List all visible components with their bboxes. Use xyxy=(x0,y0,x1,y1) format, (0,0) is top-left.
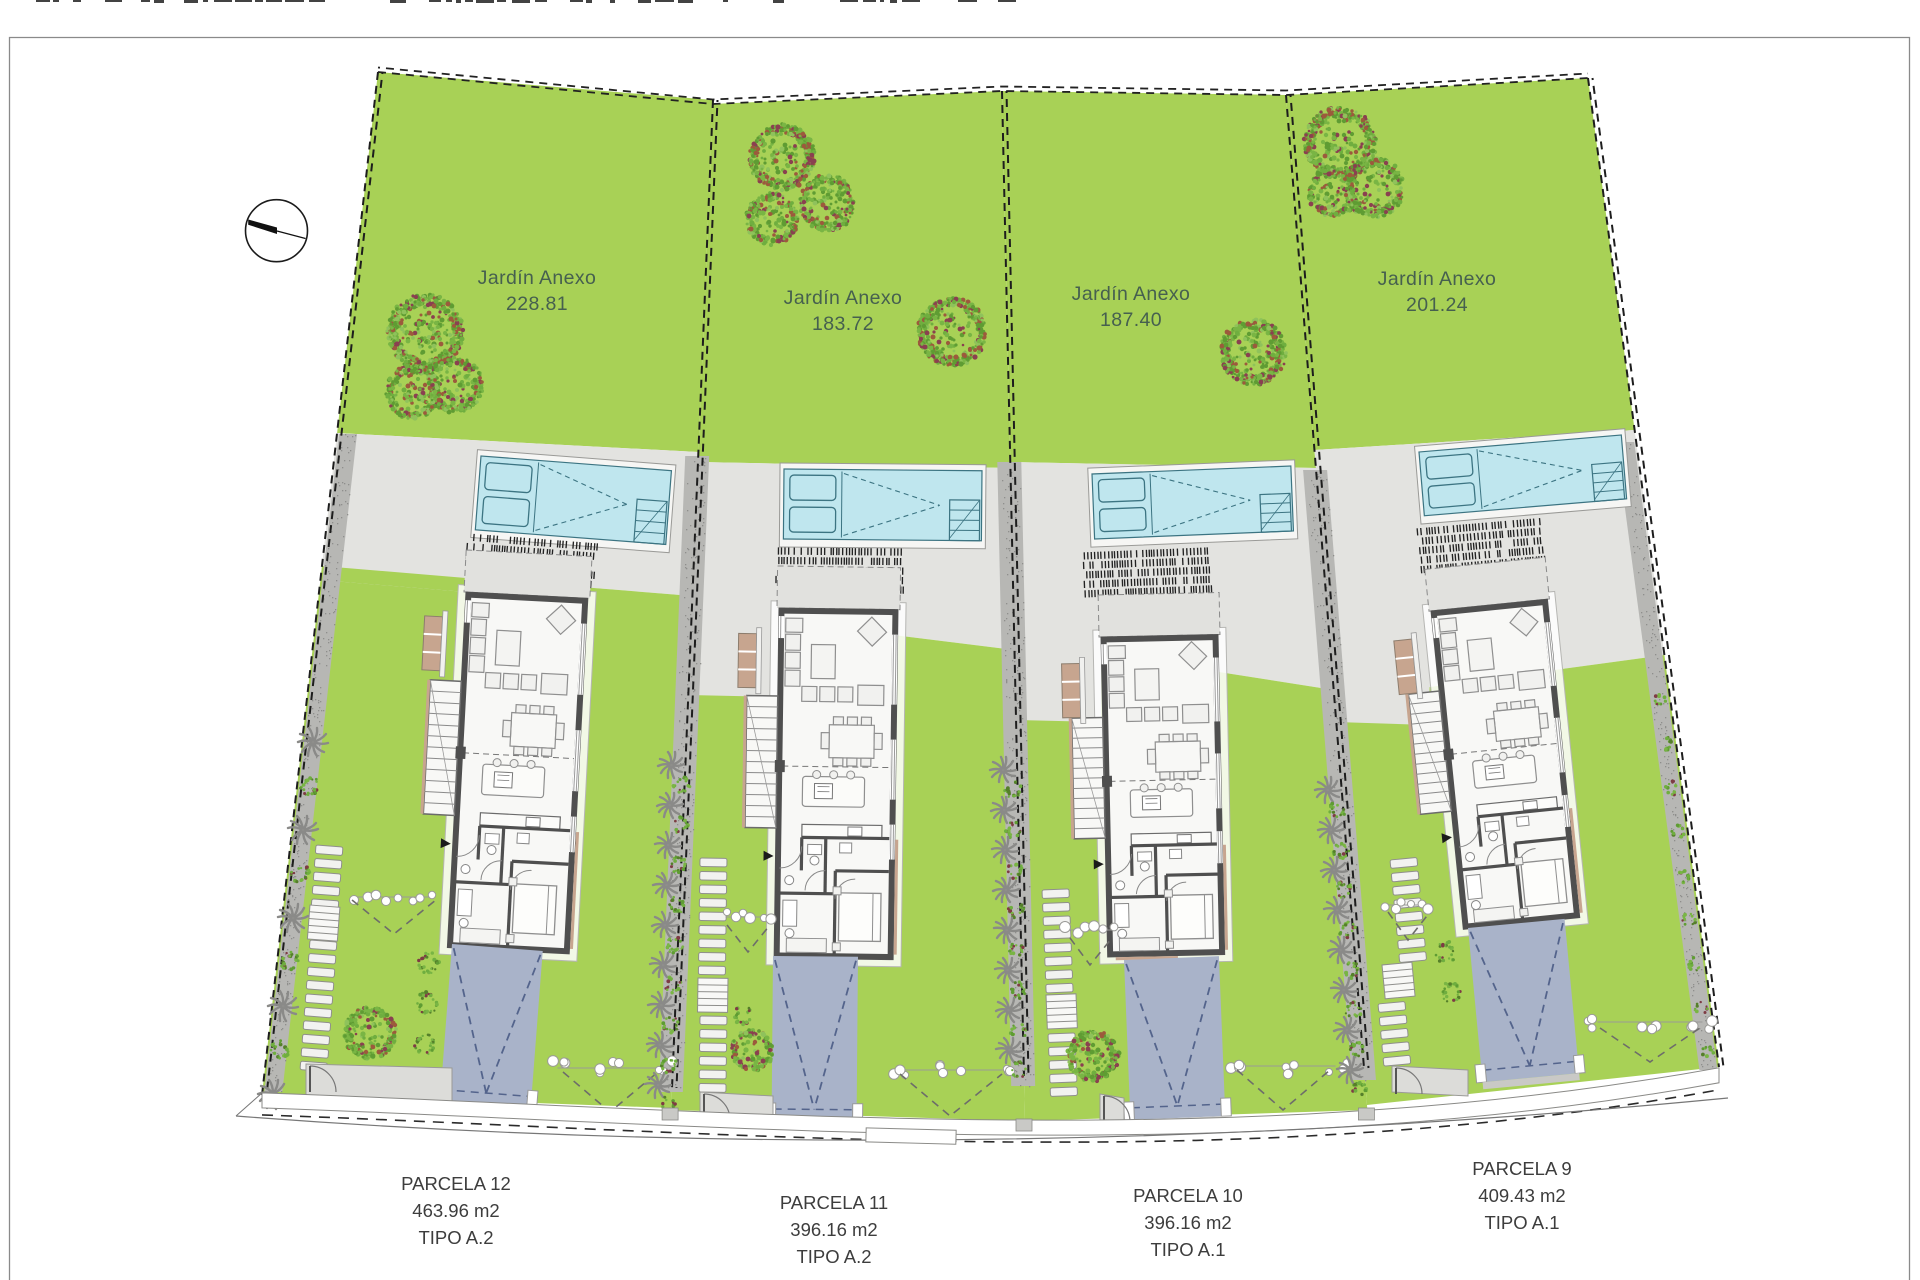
svg-text:Jardín Anexo: Jardín Anexo xyxy=(1072,283,1191,305)
svg-text:Jardín Anexo: Jardín Anexo xyxy=(1378,268,1497,290)
svg-text:183.72: 183.72 xyxy=(812,313,874,335)
svg-text:Jardín Anexo: Jardín Anexo xyxy=(478,267,597,289)
svg-text:187.40: 187.40 xyxy=(1100,309,1162,331)
svg-text:201.24: 201.24 xyxy=(1406,294,1468,316)
svg-text:228.81: 228.81 xyxy=(506,293,568,315)
svg-text:Jardín Anexo: Jardín Anexo xyxy=(784,287,903,309)
